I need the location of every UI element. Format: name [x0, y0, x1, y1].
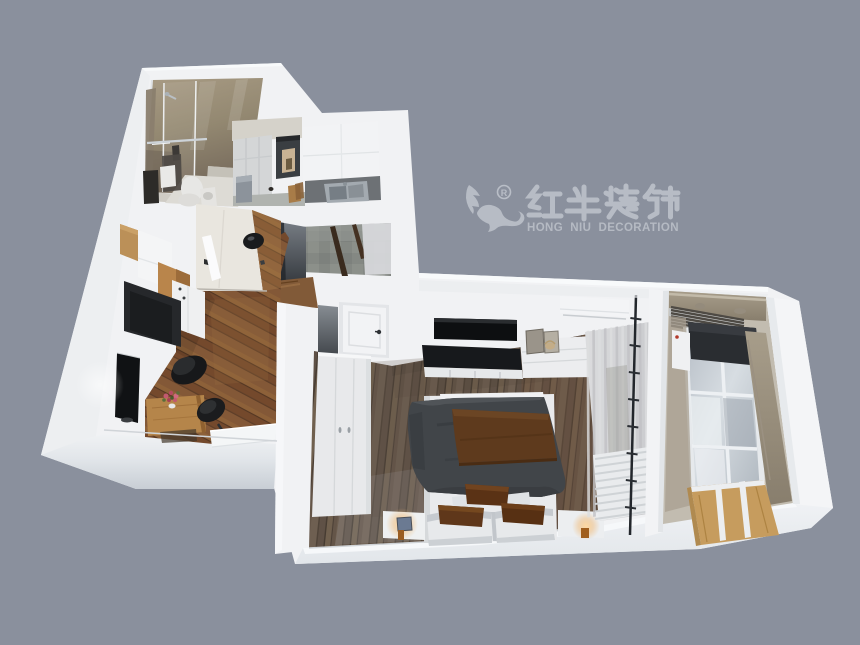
svg-text:R: R — [501, 188, 508, 198]
svg-text:HONG NIU DECORATION: HONG NIU DECORATION — [527, 222, 679, 234]
